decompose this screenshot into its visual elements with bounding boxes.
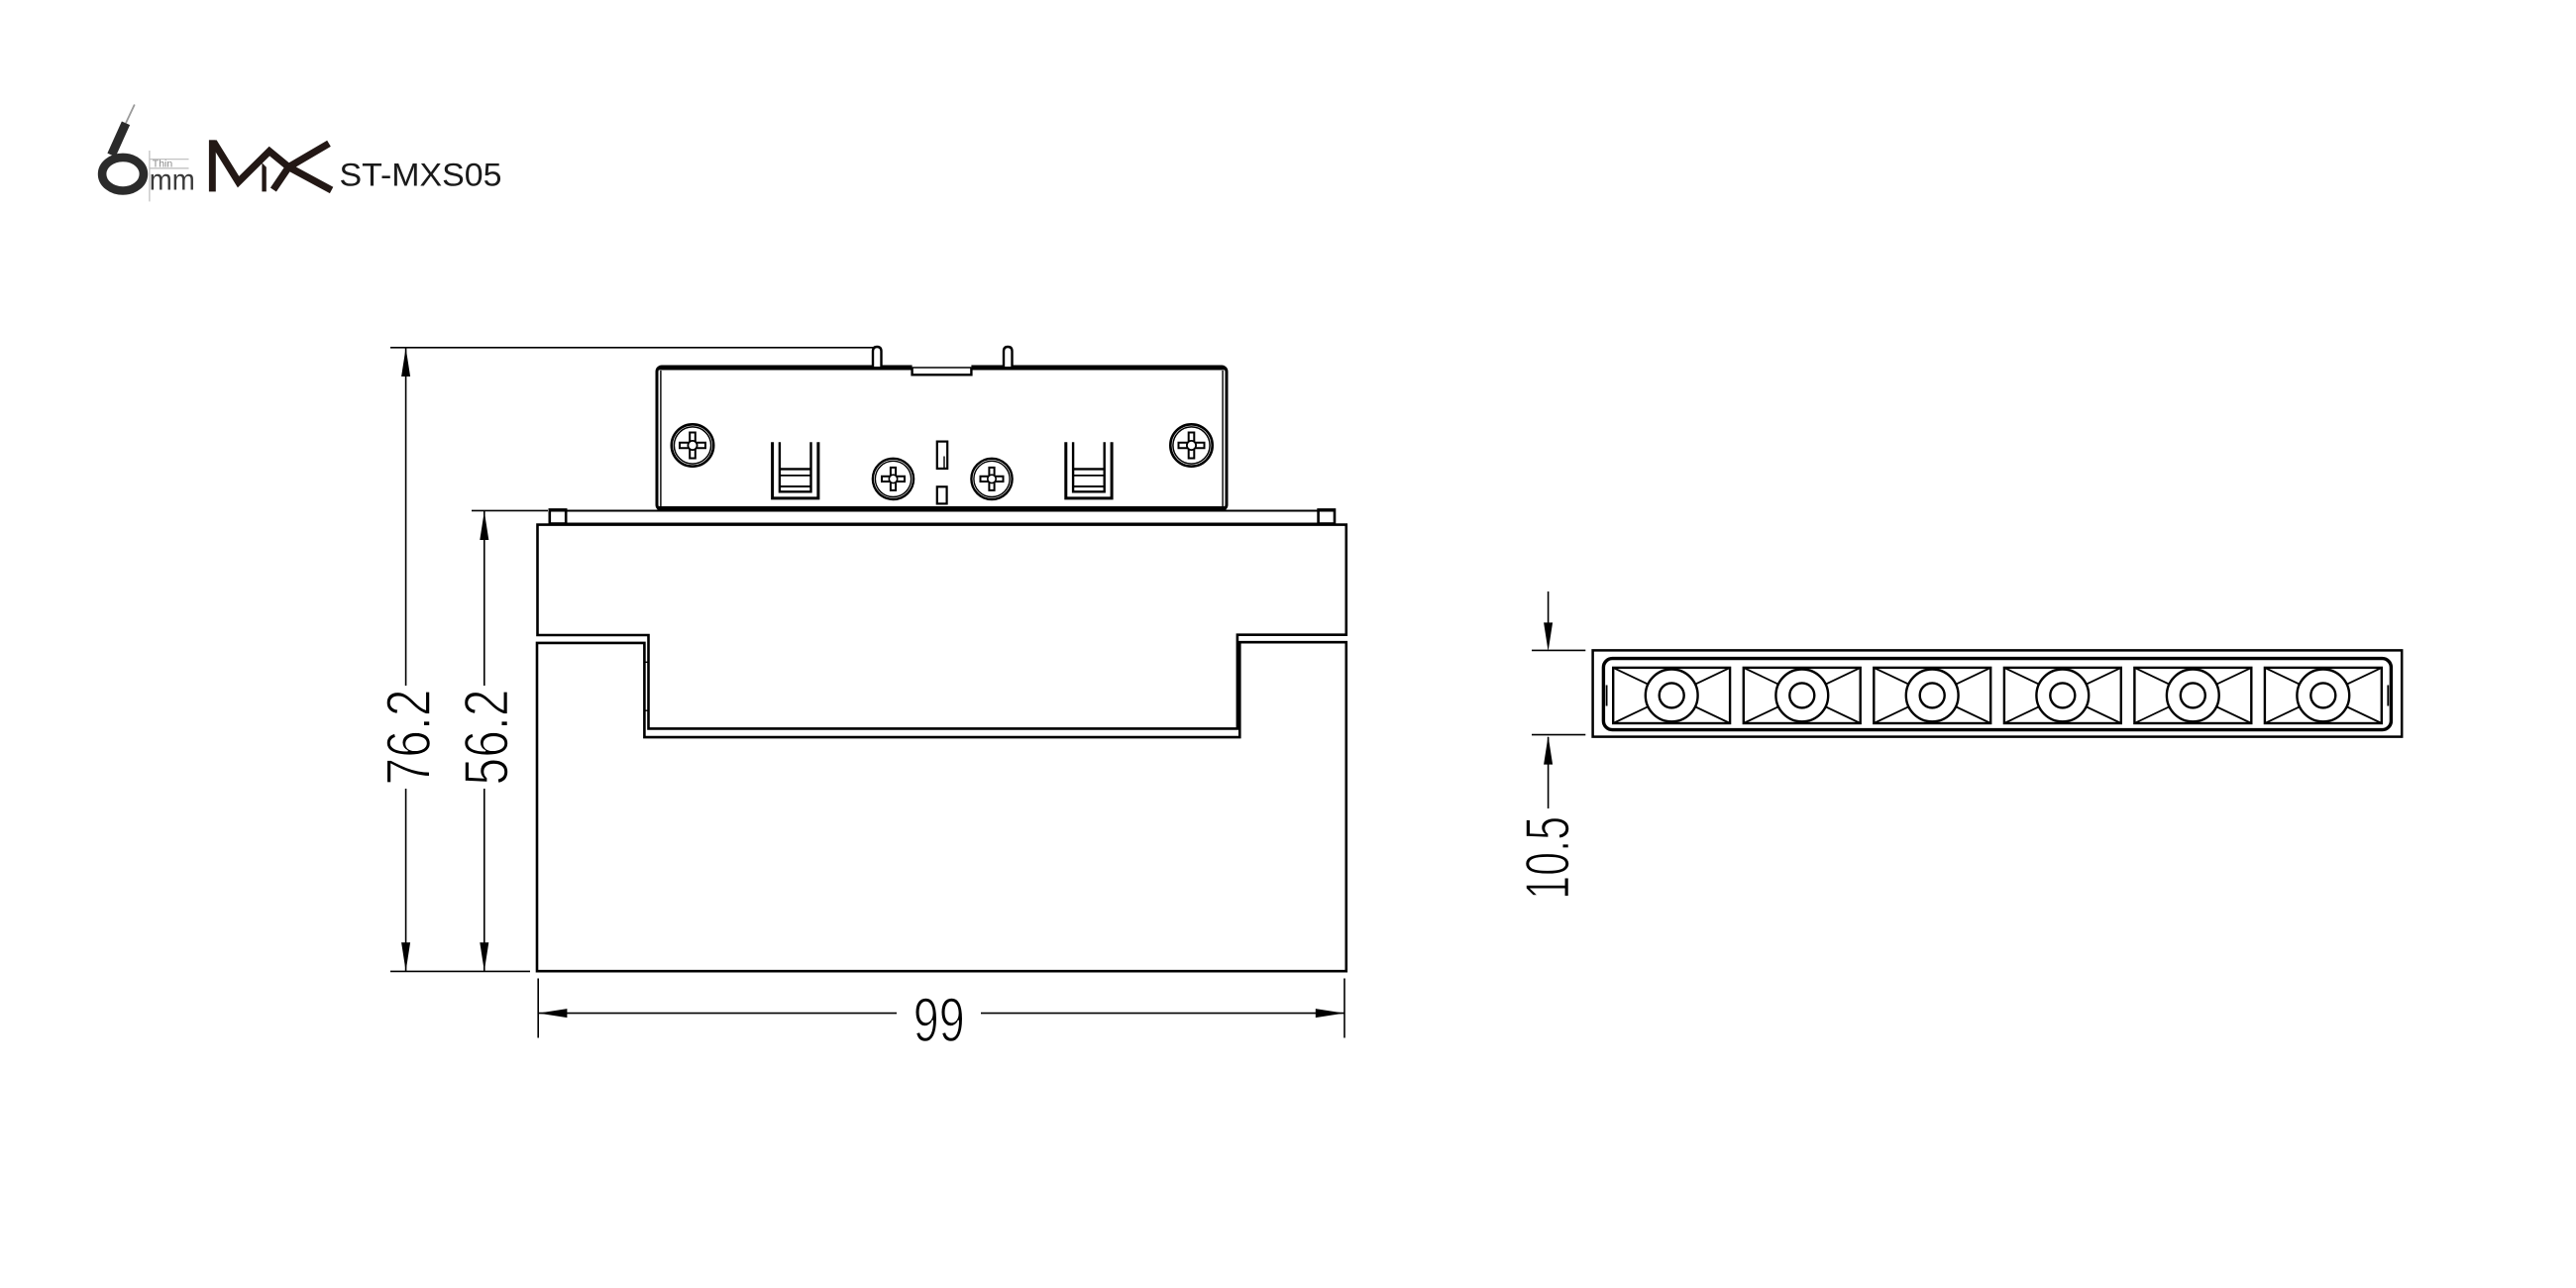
svg-text:ST-MXS05: ST-MXS05 (340, 157, 502, 192)
svg-text:99: 99 (913, 986, 965, 1055)
svg-text:76.2: 76.2 (375, 690, 444, 786)
svg-text:mm: mm (150, 164, 195, 197)
svg-text:10.5: 10.5 (1514, 816, 1583, 900)
svg-text:56.2: 56.2 (452, 690, 521, 786)
